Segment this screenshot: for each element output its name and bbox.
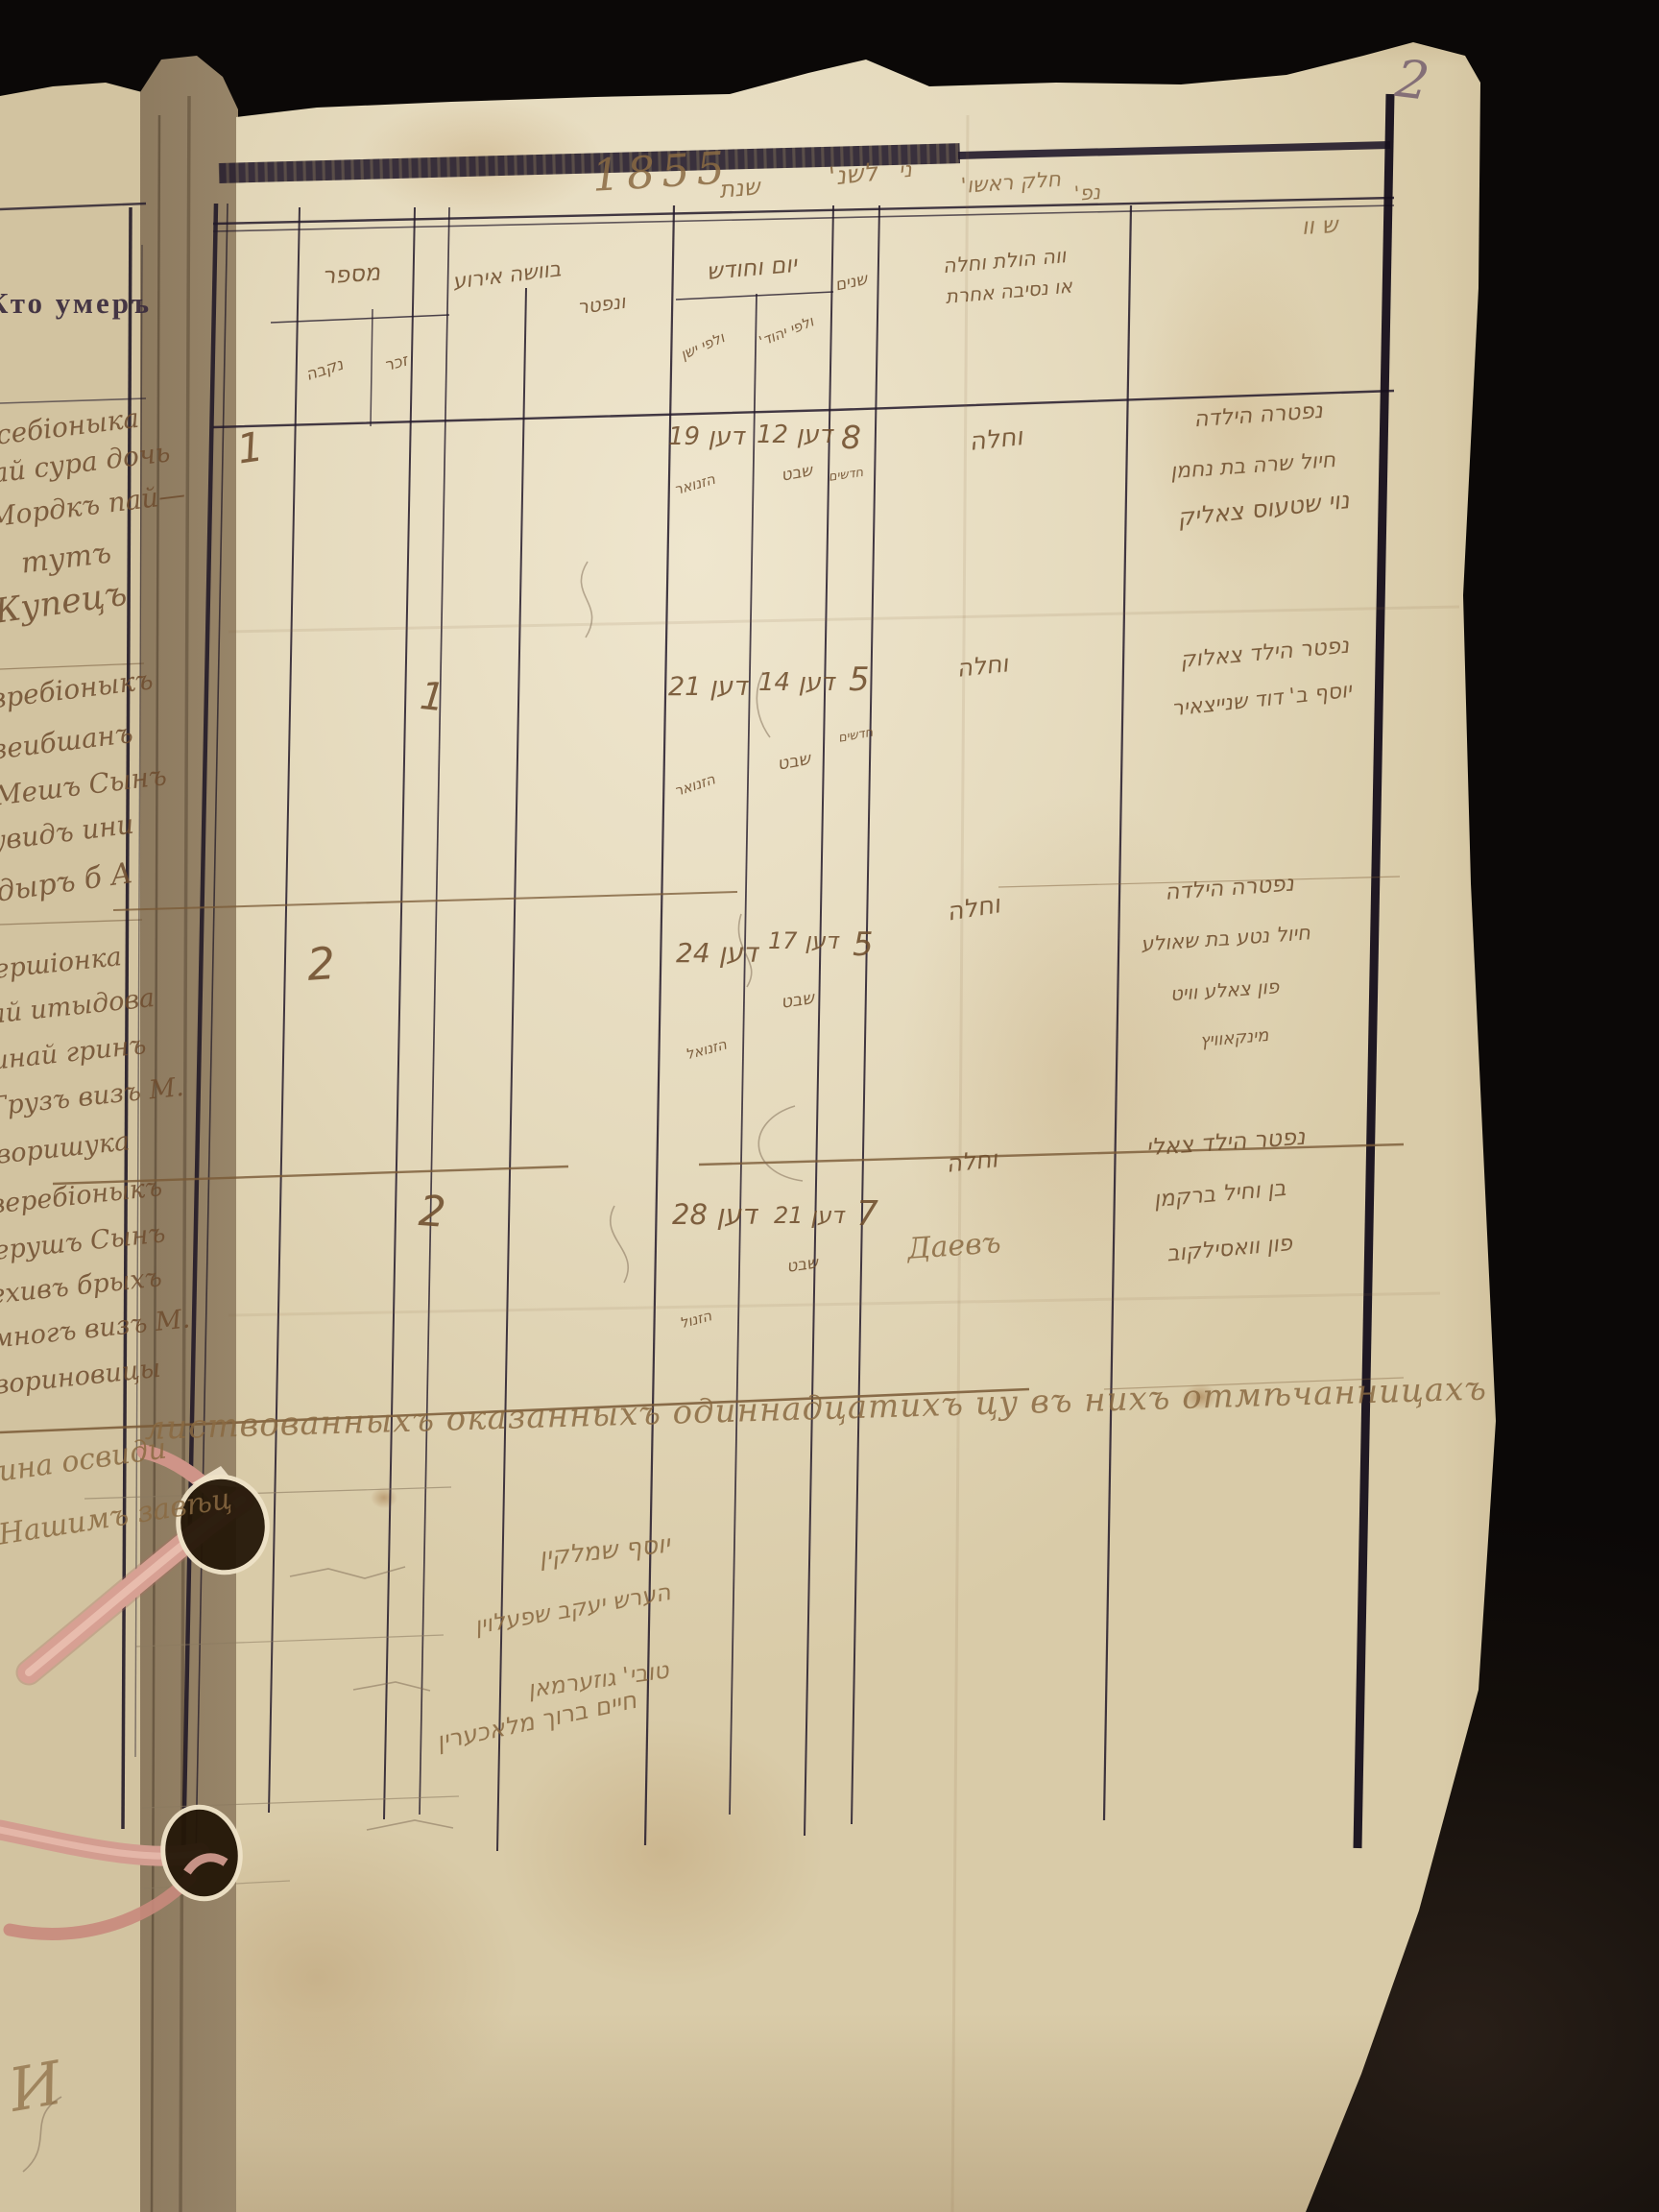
row2-age: 5 (849, 661, 870, 699)
year-word-5: נפ' (1073, 180, 1101, 205)
left-page-printed-header: Кто умеръ (0, 286, 152, 321)
row3-date-heb: דען 17 (768, 927, 838, 954)
row3-date-old: דען 24 (676, 937, 757, 969)
year-word-1: שנת (718, 173, 761, 204)
year-heading: 1855 (590, 141, 733, 202)
row2-cause: וחלה (955, 649, 1009, 682)
row2-date-heb: דען 14 (758, 668, 834, 697)
row4-count-male: 2 (417, 1187, 446, 1238)
row4-date-heb: דען 21 (774, 1202, 844, 1229)
row3-age: 5 (853, 926, 874, 964)
row1-cause: וחלה (968, 422, 1024, 457)
row3-count-female: 2 (305, 937, 337, 991)
row4-age: 7 (856, 1194, 878, 1234)
row2-count-male: 1 (418, 674, 446, 720)
corner-mark: ש וו (1301, 211, 1338, 240)
row1-age: 8 (841, 419, 861, 456)
marginal-annotation: Даевъ (906, 1226, 1002, 1266)
row1-date-heb: דען 12 (757, 421, 832, 449)
row2-date-old: דען 21 (668, 672, 747, 702)
photograph-of-register-page: 2 1855 שנת לשנ' ני חלק ראשו' נפ' ש וו Кт… (0, 0, 1659, 2212)
year-word-2: לשנ' (828, 158, 879, 192)
row1-date-old: דען 19 (668, 422, 744, 451)
year-word-3: ני (898, 158, 913, 183)
row4-cause: וחלה (945, 1144, 998, 1177)
row4-date-old: דען 28 (672, 1198, 757, 1231)
table-ruling-overlay (0, 0, 1659, 2212)
